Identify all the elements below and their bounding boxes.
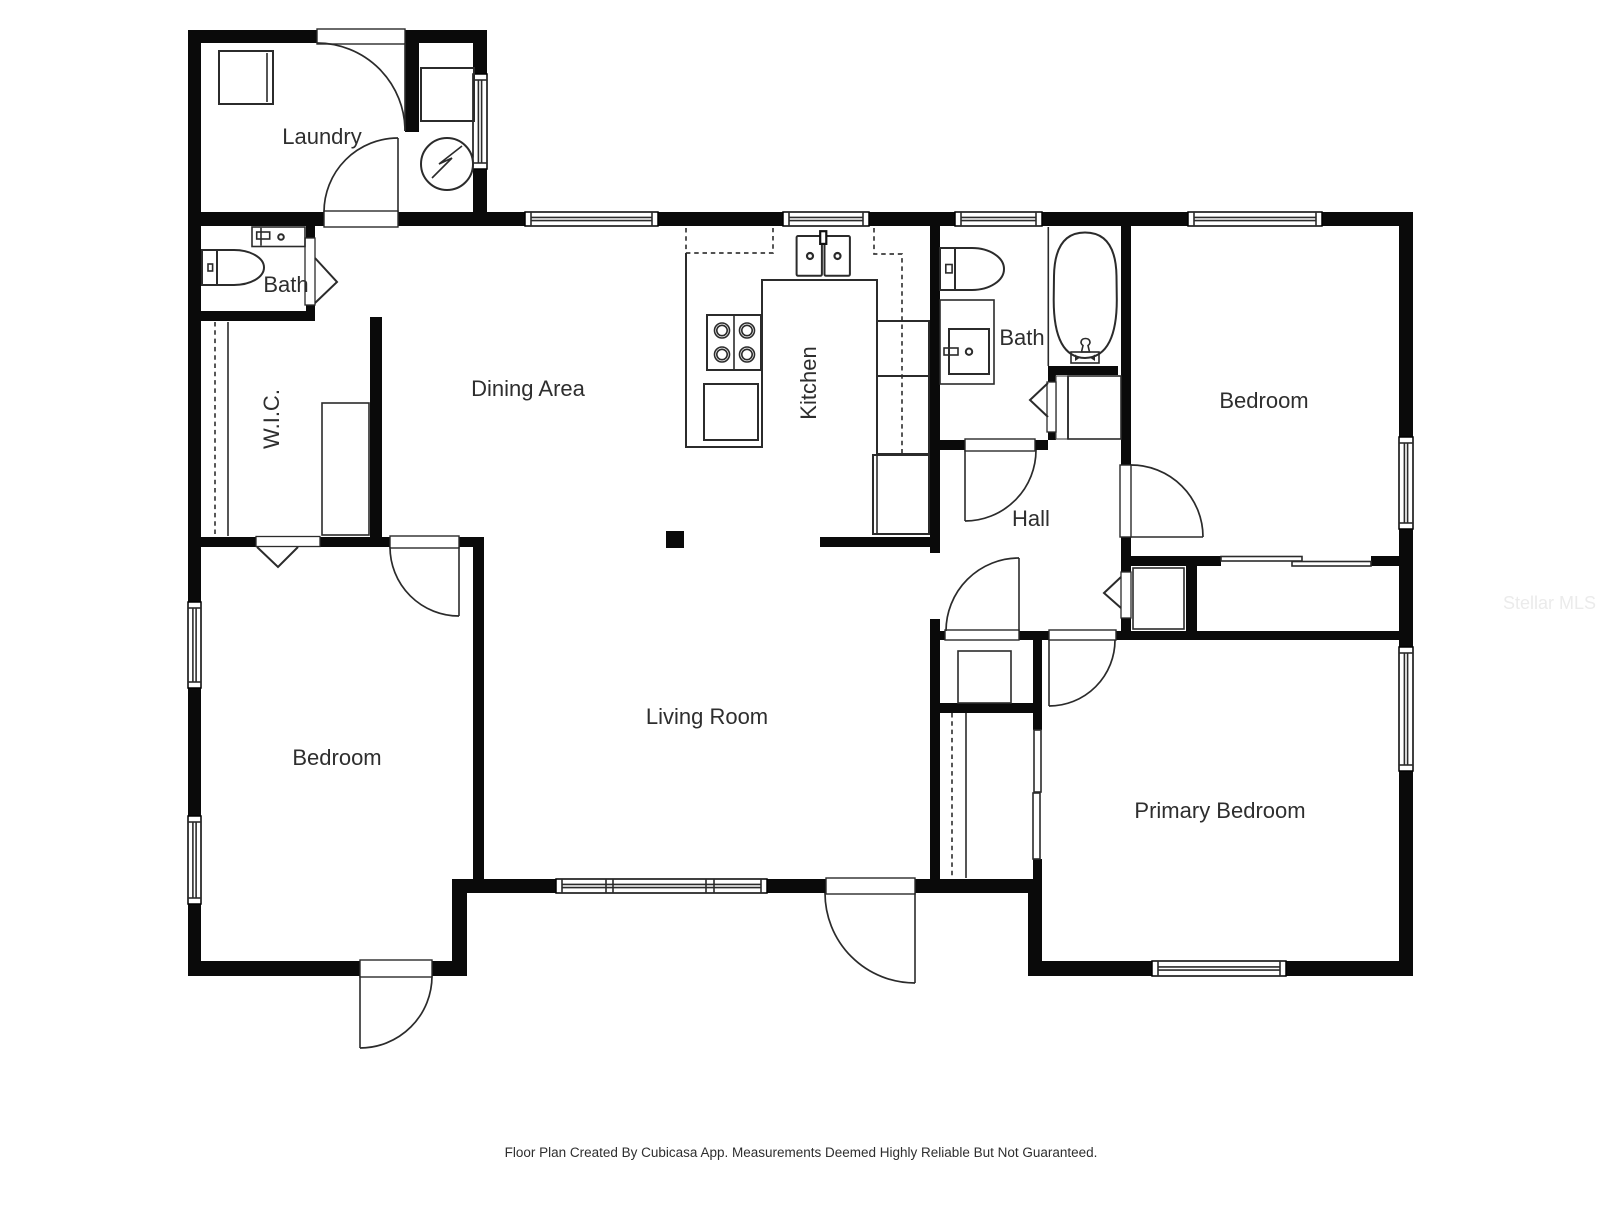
- svg-text:Bedroom: Bedroom: [292, 745, 381, 770]
- svg-text:W.I.C.: W.I.C.: [259, 389, 284, 449]
- svg-text:Bath: Bath: [999, 325, 1044, 350]
- svg-text:Kitchen: Kitchen: [796, 346, 821, 419]
- svg-text:Bath: Bath: [263, 272, 308, 297]
- svg-text:Living Room: Living Room: [646, 704, 768, 729]
- svg-text:Bedroom: Bedroom: [1219, 388, 1308, 413]
- svg-text:Hall: Hall: [1012, 506, 1050, 531]
- svg-text:Stellar MLS: Stellar MLS: [1503, 593, 1596, 613]
- svg-text:Floor Plan Created By Cubicasa: Floor Plan Created By Cubicasa App. Meas…: [505, 1145, 1098, 1160]
- svg-text:Primary Bedroom: Primary Bedroom: [1134, 798, 1305, 823]
- svg-text:Dining Area: Dining Area: [471, 376, 586, 401]
- svg-text:Laundry: Laundry: [282, 124, 362, 149]
